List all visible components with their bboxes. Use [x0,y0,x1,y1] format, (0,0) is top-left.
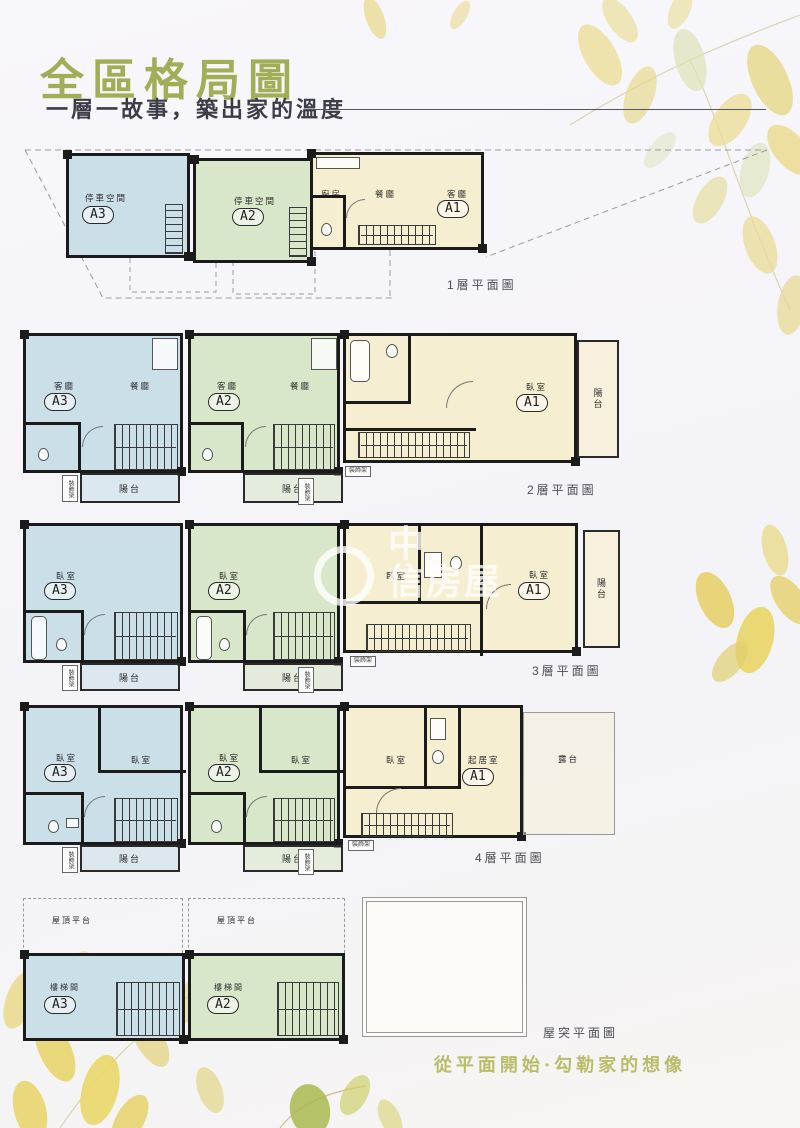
room-label-stair-room: 樓梯間 [214,982,244,993]
unit-badge-a3: A3 [44,996,76,1014]
brochure-page: 全區格局圖 一層一故事，築出家的溫度 停車空間 A3 停車空間 A2 廚房 餐廳… [0,0,800,1128]
page-subtitle: 一層一故事，築出家的溫度 [46,92,346,124]
watermark-text: 信房屋 [388,564,502,600]
watermark: 中 信房屋 [302,524,512,644]
divider-line [312,109,766,110]
unit-badge-a2: A2 [207,996,239,1014]
watermark-text: 中 [388,526,424,562]
room-label-roof-deck: 屋頂平台 [217,915,257,926]
unit-a3-roof: 樓梯間 A3 [23,953,185,1041]
roof-deck-a2: 屋頂平台 [188,898,345,953]
roof-deck-a3: 屋頂平台 [23,898,183,953]
room-label-roof-deck: 屋頂平台 [52,915,92,926]
roof-outline-a1 [362,897,527,1037]
unit-a2-roof: 樓梯間 A2 [188,953,345,1041]
stairs [277,982,339,1036]
footer-slogan: 從平面開始·勾勒家的想像 [400,1051,720,1077]
stairs [116,982,180,1036]
caption-roof: 屋突平面圖 [543,1024,618,1041]
room-label-stair-room: 樓梯間 [50,982,80,993]
brand-logo-icon [314,546,374,606]
